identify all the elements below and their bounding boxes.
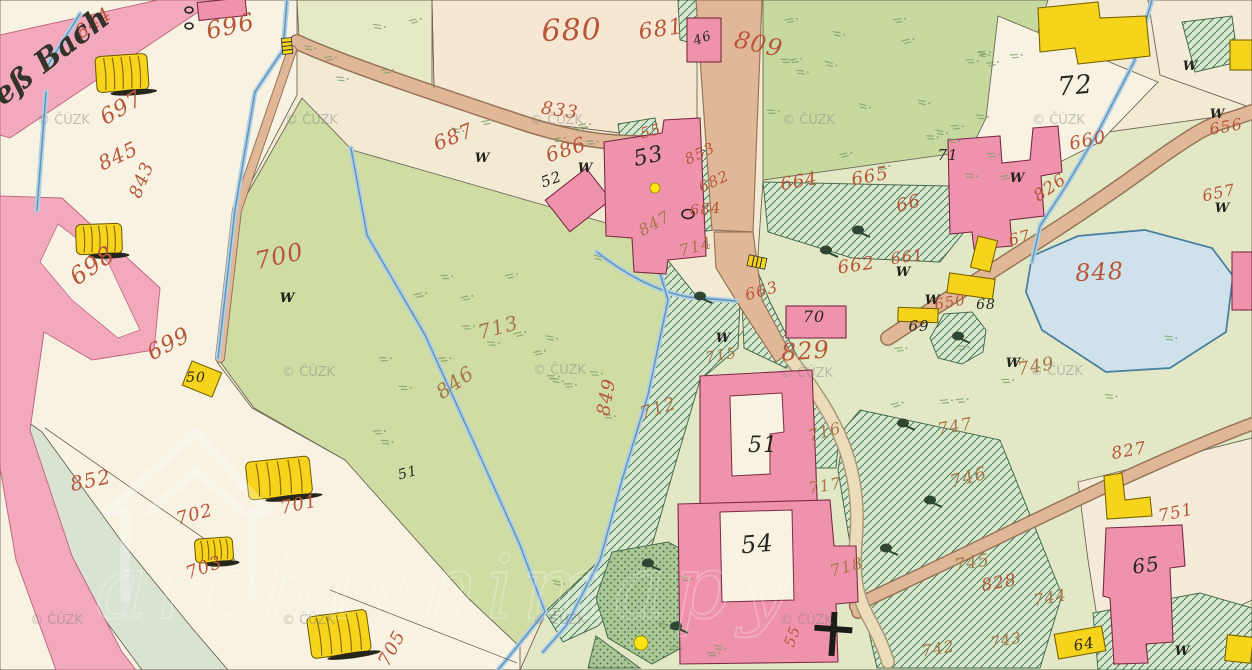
meadow-w-symbol: W <box>1183 59 1199 74</box>
tuft-line <box>1012 57 1019 58</box>
tuft-line <box>942 403 949 404</box>
tuft-line <box>672 649 679 650</box>
meadow-w-symbol: W <box>896 265 912 280</box>
tuft-line <box>949 142 956 143</box>
tuft-line <box>1164 336 1172 337</box>
building-number: 51 <box>748 433 778 458</box>
tuft-line <box>948 139 956 140</box>
tuft-line <box>441 360 448 361</box>
tuft-line <box>462 326 470 327</box>
parcel-number: 829 <box>780 335 831 366</box>
cadastral-map-viewport[interactable]: 8446966978458436987006998527027037017056… <box>0 0 1252 670</box>
meadow-w-symbol: W <box>475 151 491 166</box>
meadow-w-symbol: W <box>1215 201 1231 216</box>
yellow-dot-marker <box>650 183 660 193</box>
script-watermark: archivnimapy <box>95 536 796 639</box>
building-number: 68 <box>976 297 996 313</box>
meadow-w-symbol: W <box>1006 356 1022 371</box>
tuft-line <box>375 433 382 434</box>
building-number: 69 <box>908 317 929 335</box>
building-number: 72 <box>1057 70 1095 103</box>
meadow-w-symbol: W <box>716 331 732 346</box>
cuzk-watermark: © ČÚZK <box>30 612 83 628</box>
cuzk-watermark: © ČÚZK <box>782 112 835 128</box>
tuft-line <box>336 77 344 78</box>
building-number: 70 <box>803 307 825 326</box>
tuft-line <box>798 73 805 74</box>
building-number: 50 <box>186 370 206 386</box>
tuft-line <box>373 431 381 432</box>
meadow-w-symbol: W <box>1010 171 1026 186</box>
meadow-w-symbol: W <box>1210 107 1226 122</box>
tuft-line <box>976 115 984 116</box>
map-canvas[interactable]: 8446966978458436987006998527027037017056… <box>0 0 1252 670</box>
meadow-w-symbol: W <box>280 291 296 306</box>
bridge-icon <box>281 38 292 55</box>
tuft-line <box>1106 398 1113 399</box>
parcel-number: 848 <box>1074 257 1124 288</box>
cuzk-watermark: © ČÚZK <box>285 112 338 128</box>
tuft-line <box>897 351 904 352</box>
tuft-line <box>951 125 959 126</box>
tuft-line <box>670 646 678 647</box>
tuft-line <box>940 400 948 401</box>
cuzk-watermark: © ČÚZK <box>530 112 583 128</box>
meadow-w-symbol: W <box>578 161 594 176</box>
cuzk-watermark: © ČÚZK <box>282 364 335 380</box>
parcel-number: 680 <box>541 12 602 49</box>
tuft-line <box>586 141 594 142</box>
tuft-line <box>796 70 804 71</box>
cuzk-watermark: © ČÚZK <box>1032 112 1085 128</box>
tuft-line <box>953 128 960 129</box>
building-right-edge <box>1232 252 1252 310</box>
cuzk-watermark: © ČÚZK <box>780 365 833 381</box>
building-number: 64 <box>1072 633 1096 654</box>
building-number: 71 <box>937 146 958 164</box>
meadow-w-symbol: W <box>925 293 941 308</box>
meadow-w-symbol: W <box>1175 644 1191 659</box>
tuft-line <box>1166 339 1173 340</box>
tuft-dot <box>977 60 979 62</box>
building-topright <box>1230 40 1252 70</box>
tuft-line <box>1105 395 1113 396</box>
cuzk-watermark: © ČÚZK <box>37 112 90 128</box>
tuft-line <box>590 372 598 373</box>
cuzk-watermark: © ČÚZK <box>1030 363 1083 379</box>
parcel-number: 684 <box>689 199 722 220</box>
tuft-dot <box>498 342 500 344</box>
building-number: 65 <box>1131 551 1162 579</box>
tuft-line <box>464 329 471 330</box>
tuft-line <box>326 60 333 61</box>
building-bottomright <box>1225 635 1252 664</box>
tuft-line <box>895 348 903 349</box>
cuzk-watermark: © ČÚZK <box>533 362 586 378</box>
tuft-line <box>1010 54 1018 55</box>
